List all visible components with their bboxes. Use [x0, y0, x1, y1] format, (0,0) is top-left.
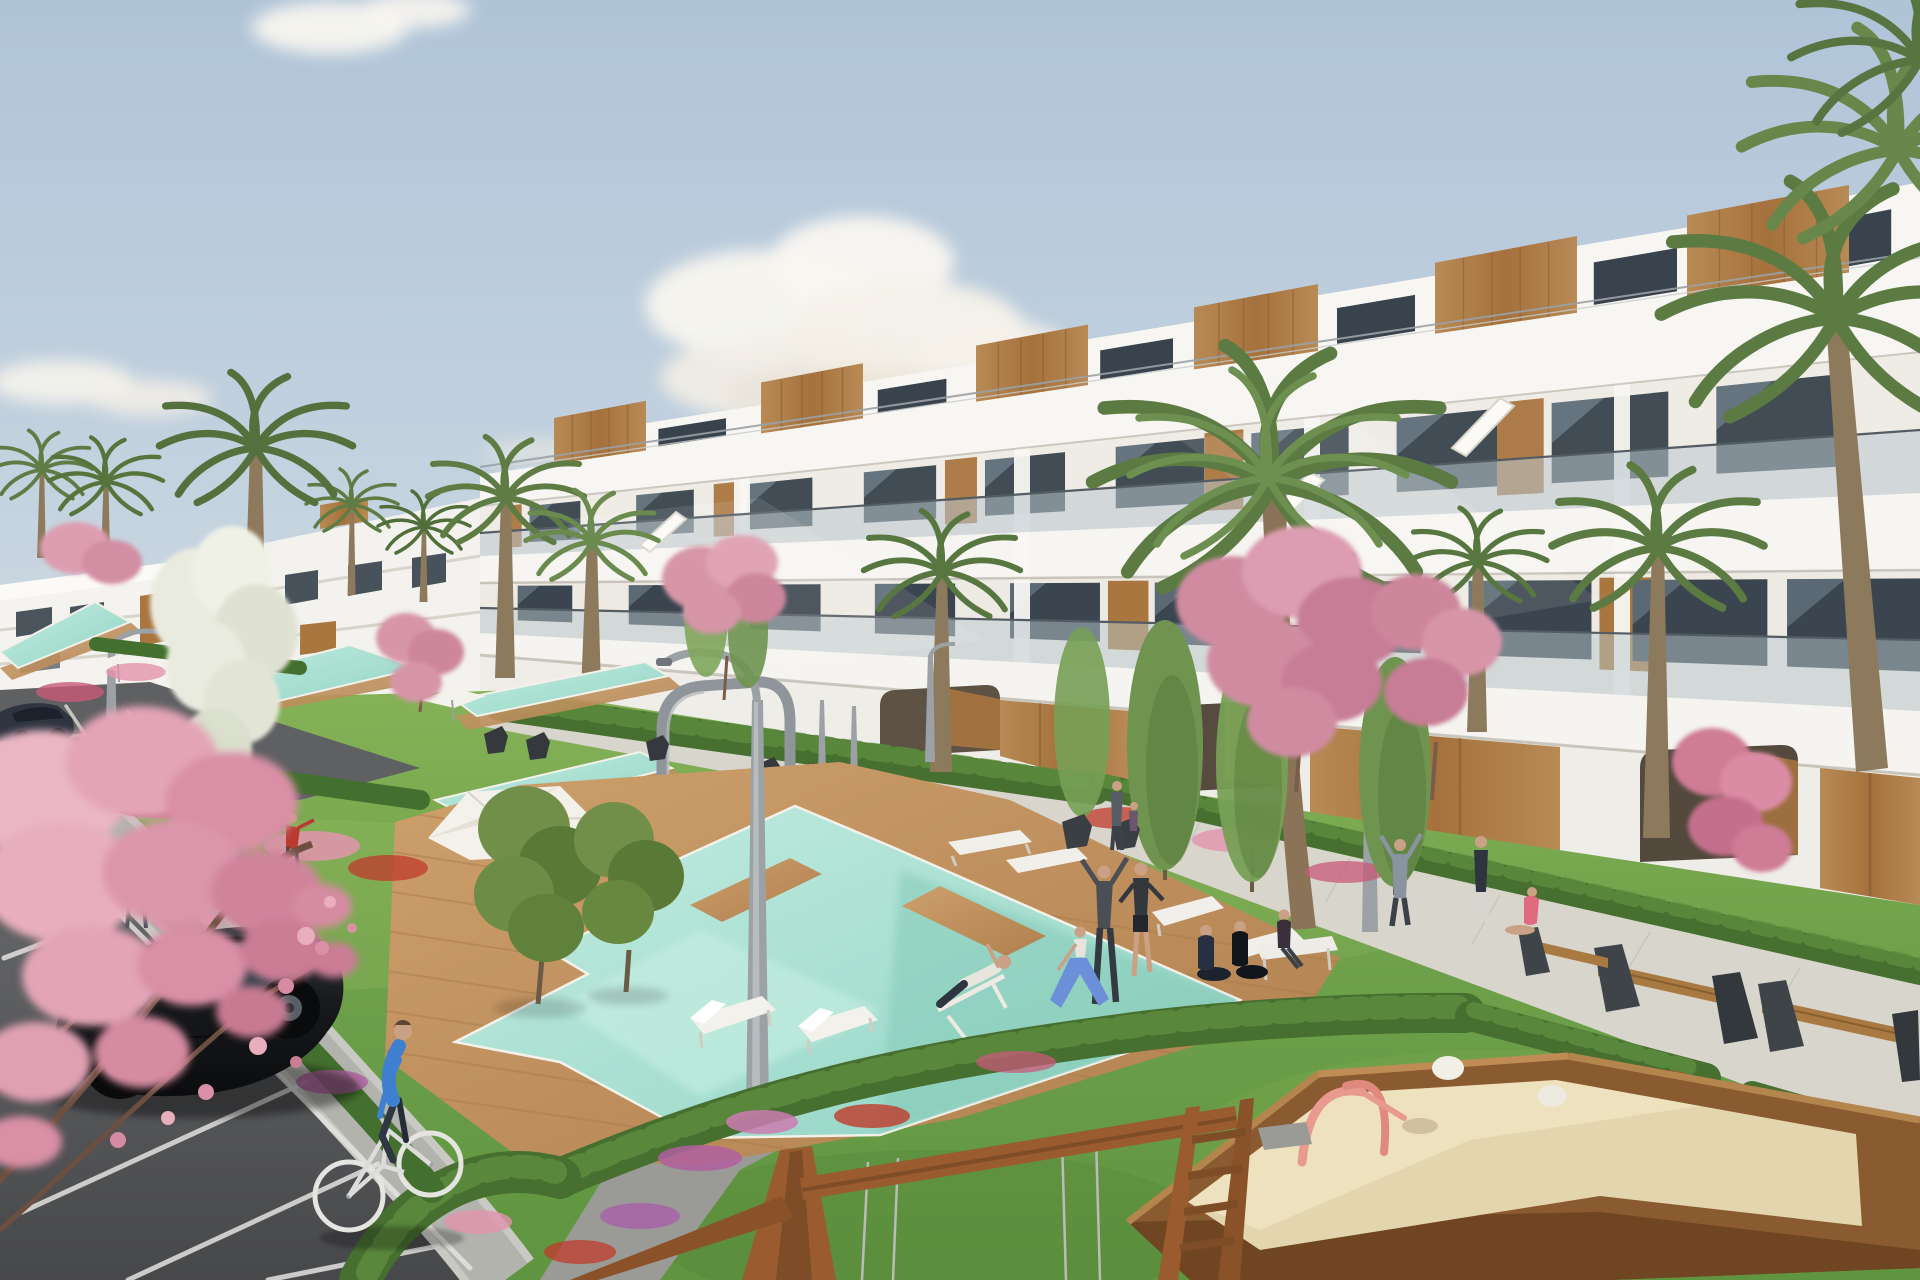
scene: (function(){ var NS='http://www.w3.org/2…: [0, 0, 1920, 1280]
